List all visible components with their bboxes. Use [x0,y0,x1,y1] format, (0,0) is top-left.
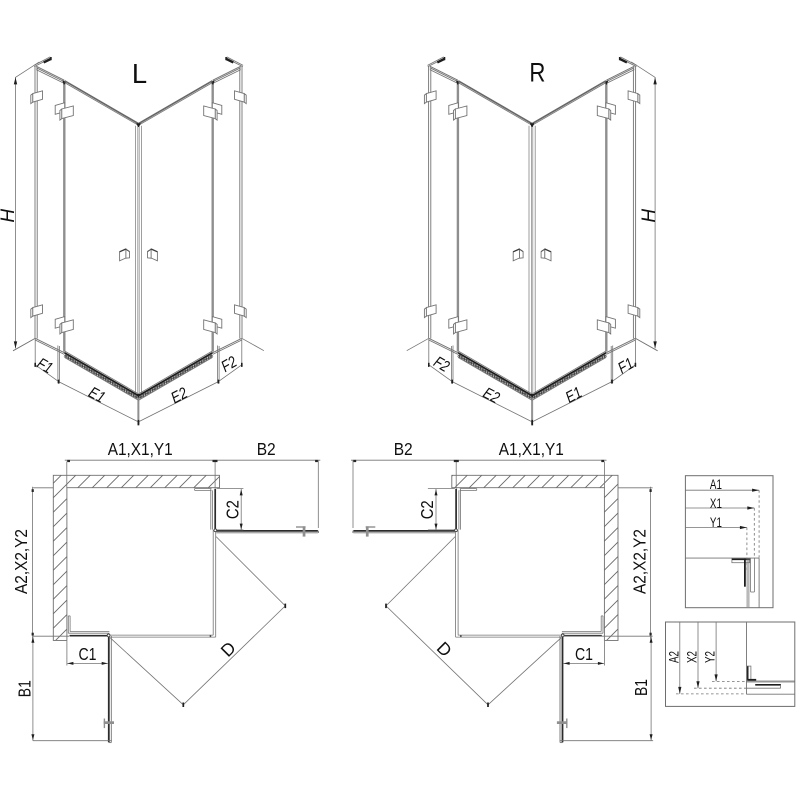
svg-text:A2: A2 [666,651,681,663]
svg-text:A1,X1,Y1: A1,X1,Y1 [499,439,564,459]
svg-text:X1: X1 [710,496,722,511]
svg-text:B2: B2 [257,439,276,459]
svg-text:B1: B1 [15,680,35,697]
svg-text:C2: C2 [417,500,437,519]
svg-text:A2,X2,Y2: A2,X2,Y2 [11,529,31,594]
svg-text:C1: C1 [575,644,593,664]
svg-text:R: R [529,58,545,88]
svg-text:B1: B1 [631,679,651,696]
svg-text:Y2: Y2 [703,651,718,663]
svg-text:A1: A1 [710,477,722,492]
svg-text:H: H [0,209,19,223]
svg-text:Y1: Y1 [710,515,722,530]
svg-text:H: H [639,209,660,223]
svg-text:A1,X1,Y1: A1,X1,Y1 [108,439,173,459]
svg-text:L: L [132,58,147,89]
svg-text:B2: B2 [394,439,413,459]
svg-text:C1: C1 [79,644,97,664]
svg-text:A2,X2,Y2: A2,X2,Y2 [630,529,650,594]
svg-text:X2: X2 [685,651,700,663]
svg-text:C2: C2 [222,500,242,519]
